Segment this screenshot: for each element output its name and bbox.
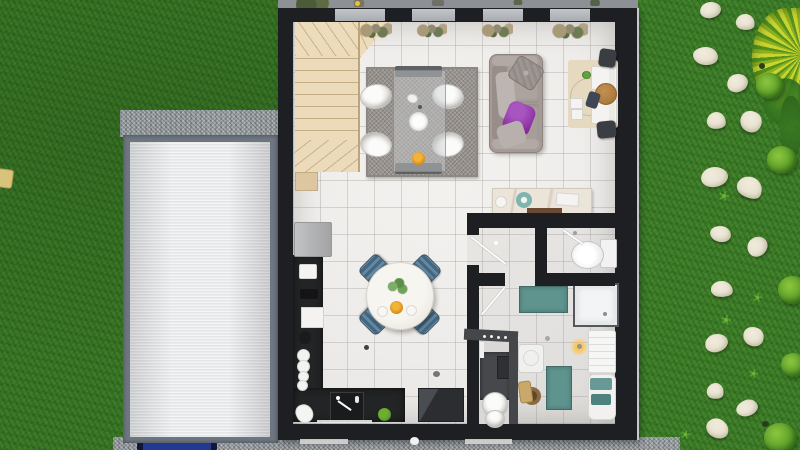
wc-wall-light	[573, 231, 577, 235]
wall-lamp	[577, 344, 582, 349]
kettle	[299, 331, 311, 344]
towel-bar	[317, 420, 372, 423]
fridge	[294, 222, 332, 257]
fruit-bowl	[412, 152, 425, 165]
wall-kitchen-bath	[467, 265, 479, 424]
toilet-bowl	[571, 241, 604, 269]
window	[412, 9, 455, 21]
sill-plant	[358, 22, 392, 39]
wall-hook	[483, 335, 486, 338]
garage-corrugated-roof	[130, 142, 270, 437]
towel-radiator	[588, 330, 616, 374]
floor-item	[364, 345, 369, 350]
window	[483, 9, 523, 21]
toaster	[299, 264, 317, 279]
wall-hook	[504, 336, 507, 339]
orange-bowl	[390, 301, 403, 314]
floor-plan-scene	[0, 0, 800, 450]
yellow-flower	[355, 1, 360, 6]
washer-door	[523, 350, 539, 366]
doormat	[465, 439, 512, 444]
teal-towel	[591, 394, 611, 405]
nook-wall-right	[509, 339, 518, 424]
star-plant	[749, 369, 758, 378]
garden-bush	[778, 276, 800, 304]
wall-living-hall	[467, 213, 615, 228]
hall-light-spot	[494, 241, 498, 245]
terrace-plant	[296, 0, 330, 8]
small-plate	[377, 306, 388, 317]
window	[335, 9, 385, 21]
dark-stool	[596, 120, 617, 139]
terrace-plant	[584, 0, 606, 6]
doormat	[300, 439, 348, 444]
garden-bush	[764, 423, 797, 450]
star-plant	[681, 430, 690, 439]
window	[550, 9, 590, 21]
shower-cabin	[573, 283, 619, 327]
console-tray	[556, 192, 580, 207]
wall-segment	[467, 213, 479, 235]
soil-spot	[759, 63, 765, 69]
round-kitchen-table	[366, 262, 434, 330]
teal-plate	[516, 192, 532, 208]
kitchen-plant	[378, 408, 391, 421]
dish	[297, 380, 308, 391]
shower-drain	[603, 312, 607, 316]
dark-stool	[598, 48, 617, 68]
wall-wc-bath	[535, 273, 615, 286]
desk-papers	[570, 98, 583, 109]
nook-mirror	[480, 342, 484, 358]
desk-papers	[571, 109, 583, 120]
teal-towel	[590, 378, 612, 390]
stair-winder-bottom	[295, 140, 360, 172]
table-centerpiece-plant	[386, 278, 408, 295]
floor-item	[433, 371, 440, 377]
doormat-round	[410, 437, 419, 445]
faucet-base	[336, 396, 340, 400]
star-plant	[753, 293, 762, 302]
desk-plant	[582, 71, 591, 79]
nook-chair-back	[485, 410, 505, 428]
wall-hook	[497, 336, 500, 339]
soap-bottle	[355, 396, 359, 403]
terrace-plant	[508, 0, 528, 5]
cooktop	[418, 388, 464, 422]
star-plant	[719, 191, 729, 201]
wall-hall-bath	[467, 273, 505, 286]
microwave	[301, 307, 324, 328]
sill-plant	[415, 23, 447, 38]
garden-bush	[756, 73, 784, 99]
garden-bush	[781, 353, 800, 377]
garage-gravel-apron	[120, 110, 278, 137]
stair-winder-top	[295, 22, 360, 56]
blue-trailer	[137, 443, 217, 450]
floor-item	[545, 336, 550, 341]
stair-landing-step	[295, 172, 318, 191]
garden-bush	[767, 146, 797, 174]
terrace-plant	[424, 0, 452, 6]
table-deco-dark	[418, 105, 422, 109]
table-plate	[409, 112, 428, 131]
star-plant	[721, 315, 731, 325]
sill-plant	[550, 23, 588, 39]
console-dish	[495, 196, 507, 208]
small-plate	[406, 305, 417, 316]
counter-item-dark	[300, 289, 318, 299]
wall-hook	[490, 335, 493, 338]
sill-plant	[480, 23, 513, 38]
wall-hall-wc	[535, 228, 547, 275]
bath-mat	[546, 366, 572, 410]
house-edge-highlight	[637, 8, 639, 440]
bath-mat	[519, 286, 568, 313]
